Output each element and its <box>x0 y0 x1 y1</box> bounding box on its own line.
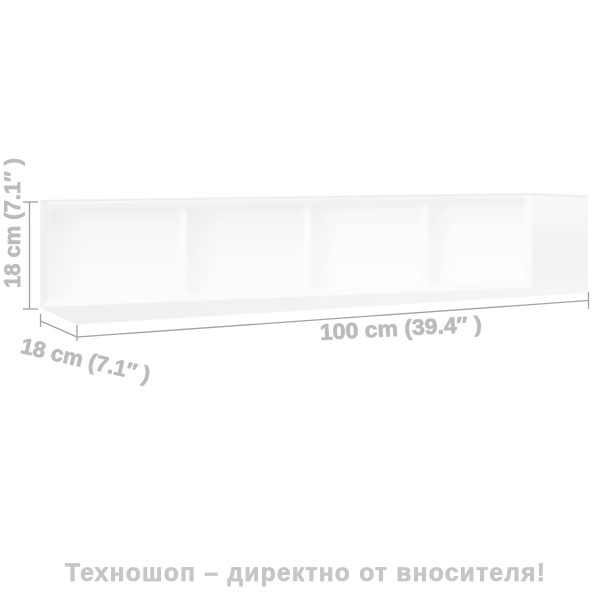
svg-text:18 cm (7.1″ ): 18 cm (7.1″ ) <box>0 158 25 288</box>
svg-text:Техношоп – директно от вносите: Техношоп – директно от вносителя! <box>65 560 545 587</box>
